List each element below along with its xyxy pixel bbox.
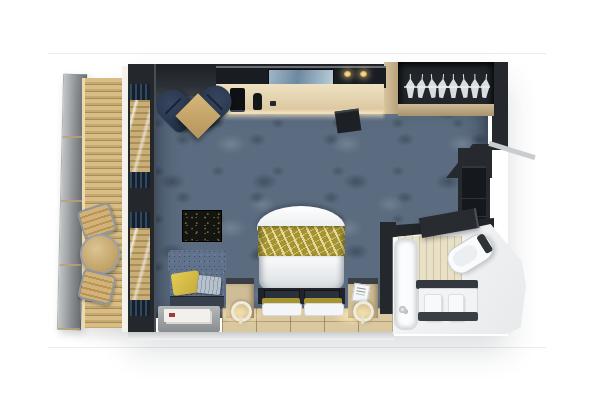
closet-divider-panel <box>384 62 398 114</box>
wall-right <box>492 62 508 150</box>
balcony-table <box>80 234 120 274</box>
reading-lamp <box>231 301 252 322</box>
cup <box>270 101 276 106</box>
hanger-icon <box>449 74 458 98</box>
coffee-machine <box>230 88 245 112</box>
hanger-icon <box>480 74 491 99</box>
curtain <box>130 300 150 316</box>
bathtub <box>394 238 418 330</box>
closet-shelf <box>398 104 494 116</box>
hanger-icon <box>416 74 427 99</box>
hanger-icon <box>459 74 470 99</box>
wall-art <box>182 210 222 242</box>
bed-duvet <box>259 256 344 290</box>
hanger-icon <box>437 74 448 99</box>
stateroom-floorplan-render <box>0 0 608 405</box>
magazines <box>164 309 210 322</box>
wall-bottom-edge <box>128 332 394 340</box>
hanger-icon <box>426 74 437 99</box>
white-pillow <box>262 303 302 316</box>
curtain <box>130 212 150 228</box>
balcony-door-window <box>130 212 150 316</box>
desk-stool <box>335 108 362 133</box>
hanger-icon <box>471 74 480 98</box>
desk-light <box>344 71 351 77</box>
kettle <box>253 93 262 110</box>
grey-pillow <box>196 275 222 295</box>
balcony-door-window <box>130 84 150 188</box>
closet-hangers <box>406 74 490 102</box>
towel-rail <box>418 312 478 321</box>
curtain <box>130 84 150 100</box>
faucet <box>399 306 406 313</box>
page-divider-line <box>48 53 546 54</box>
desk-mirror <box>268 69 334 85</box>
page-divider-line <box>48 347 546 348</box>
reading-lamp <box>353 301 374 322</box>
hanger-icon <box>406 74 415 98</box>
curtain <box>130 172 150 188</box>
bed-gold-runner <box>258 226 345 258</box>
white-pillow <box>304 303 344 316</box>
desk-light <box>360 71 367 77</box>
